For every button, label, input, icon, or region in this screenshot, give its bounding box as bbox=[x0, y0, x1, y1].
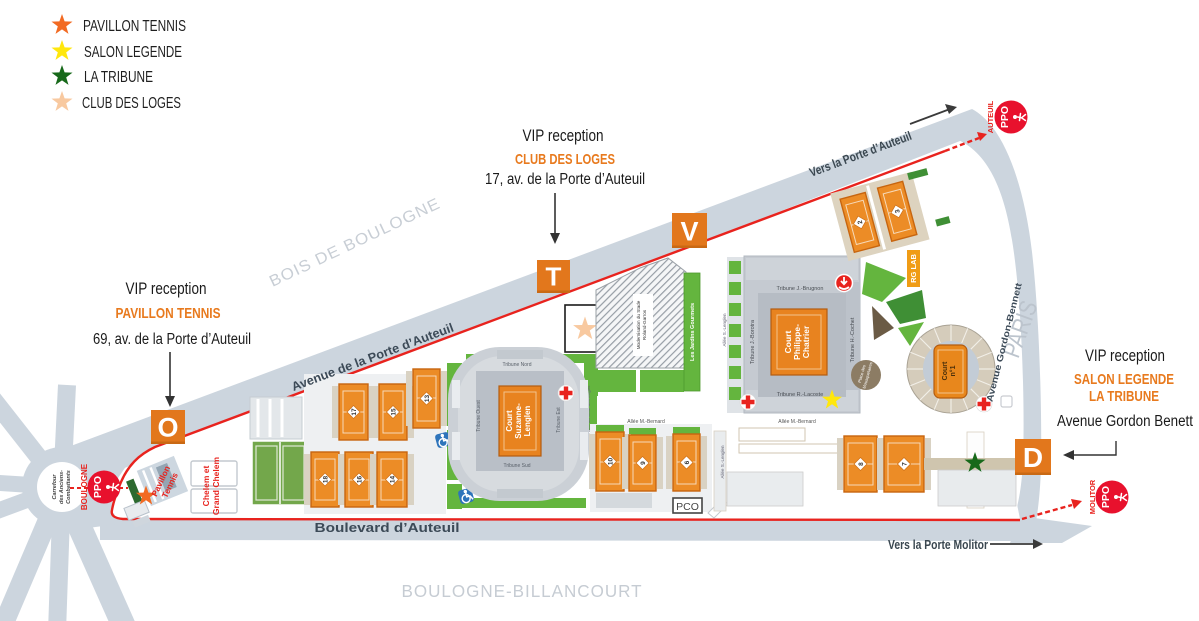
svg-text:10: 10 bbox=[607, 458, 614, 466]
svg-text:MOLITOR: MOLITOR bbox=[1088, 479, 1097, 514]
svg-text:Tribune J.-Brugnon: Tribune J.-Brugnon bbox=[777, 286, 824, 292]
svg-text:SALON LEGENDE: SALON LEGENDE bbox=[84, 44, 182, 61]
svg-text:BOULOGNE-BILLANCOURT: BOULOGNE-BILLANCOURT bbox=[402, 581, 643, 601]
svg-text:PAVILLON TENNIS: PAVILLON TENNIS bbox=[116, 305, 221, 322]
svg-text:Tribune Nord: Tribune Nord bbox=[503, 362, 532, 368]
svg-text:Les Jardins Gourmets: Les Jardins Gourmets bbox=[690, 303, 696, 361]
svg-text:PCO: PCO bbox=[676, 501, 699, 513]
svg-text:SALON LEGENDE: SALON LEGENDE bbox=[1074, 371, 1174, 388]
svg-text:Tribune Est: Tribune Est bbox=[556, 407, 562, 433]
svg-text:9: 9 bbox=[640, 461, 647, 465]
svg-text:BOIS DE BOULOGNE: BOIS DE BOULOGNE bbox=[267, 195, 443, 290]
svg-text:CLUB DES LOGES: CLUB DES LOGES bbox=[82, 95, 181, 112]
svg-text:PPO: PPO bbox=[92, 476, 104, 498]
svg-text:Vers la Porte Molitor: Vers la Porte Molitor bbox=[888, 537, 988, 552]
svg-text:Allée S.-Lenglen: Allée S.-Lenglen bbox=[722, 313, 727, 347]
svg-text:15: 15 bbox=[390, 408, 397, 416]
svg-text:Tribune H.-Cochet: Tribune H.-Cochet bbox=[850, 317, 856, 362]
svg-text:14: 14 bbox=[389, 476, 396, 484]
svg-text:13: 13 bbox=[424, 395, 431, 403]
svg-text:18: 18 bbox=[322, 476, 329, 484]
svg-text:Tribune Sud: Tribune Sud bbox=[503, 463, 530, 469]
svg-text:16: 16 bbox=[356, 476, 363, 484]
svg-text:17: 17 bbox=[351, 408, 358, 416]
svg-text:VIP reception: VIP reception bbox=[523, 127, 604, 145]
svg-text:PPO: PPO bbox=[1100, 486, 1112, 508]
svg-text:AUTEUIL: AUTEUIL bbox=[986, 100, 995, 133]
svg-text:Allée S.-Lenglen: Allée S.-Lenglen bbox=[720, 445, 725, 479]
svg-text:Allée M.-Bernard: Allée M.-Bernard bbox=[778, 419, 816, 425]
svg-text:BOULOGNE: BOULOGNE bbox=[80, 463, 89, 510]
svg-text:Tribune J.-Borotra: Tribune J.-Borotra bbox=[750, 319, 756, 364]
svg-text:Tribune Ouest: Tribune Ouest bbox=[476, 400, 482, 432]
svg-text:VIP reception: VIP reception bbox=[1085, 347, 1165, 365]
svg-text:6: 6 bbox=[684, 460, 691, 464]
svg-text:PAVILLON TENNIS: PAVILLON TENNIS bbox=[83, 18, 186, 35]
svg-text:7: 7 bbox=[901, 462, 908, 466]
svg-text:8: 8 bbox=[858, 462, 865, 466]
svg-text:O: O bbox=[157, 413, 178, 443]
svg-text:RG LAB: RG LAB bbox=[909, 254, 918, 283]
svg-text:CLUB DES LOGES: CLUB DES LOGES bbox=[515, 151, 615, 168]
svg-text:LA TRIBUNE: LA TRIBUNE bbox=[1089, 388, 1159, 405]
svg-text:Tribune R.-Lacoste: Tribune R.-Lacoste bbox=[777, 392, 824, 398]
svg-text:VIP reception: VIP reception bbox=[126, 280, 207, 298]
svg-text:69, av. de la Porte d’Auteuil: 69, av. de la Porte d’Auteuil bbox=[93, 331, 251, 348]
svg-text:D: D bbox=[1023, 442, 1043, 473]
svg-text:17, av. de la Porte d’Auteuil: 17, av. de la Porte d’Auteuil bbox=[485, 171, 645, 188]
svg-text:Avenue Gordon Benett: Avenue Gordon Benett bbox=[1057, 413, 1194, 430]
svg-text:T: T bbox=[546, 262, 562, 292]
svg-text:PPO: PPO bbox=[999, 106, 1011, 128]
svg-text:Boulevard d’Auteuil: Boulevard d’Auteuil bbox=[315, 520, 460, 535]
svg-text:V: V bbox=[680, 216, 698, 246]
svg-text:LA TRIBUNE: LA TRIBUNE bbox=[84, 69, 153, 86]
svg-text:Carrefourdes Anciens-Combattan: Carrefourdes Anciens-Combattants bbox=[52, 470, 72, 504]
svg-text:Allée M.-Bernard: Allée M.-Bernard bbox=[627, 419, 665, 425]
